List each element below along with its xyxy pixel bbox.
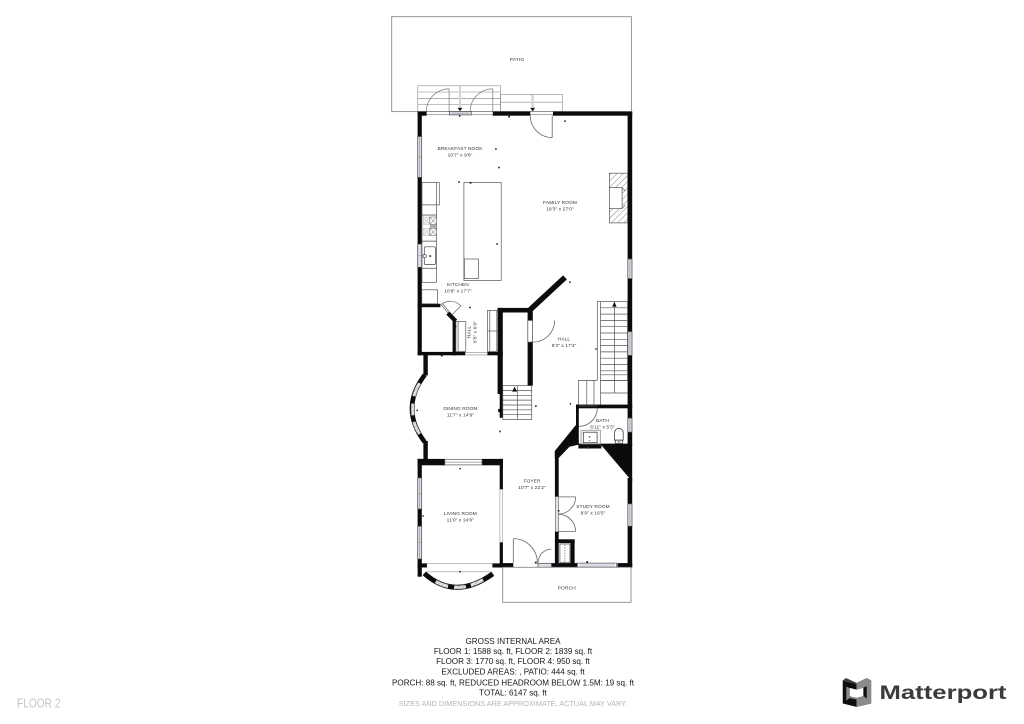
svg-text:FLOOR 3: 1770 sq. ft, FLOOR 4:: FLOOR 3: 1770 sq. ft, FLOOR 4: 950 sq. f… (436, 657, 591, 666)
svg-text:BREAKFAST NOOK: BREAKFAST NOOK (437, 146, 483, 152)
svg-text:FAMILY ROOM: FAMILY ROOM (543, 200, 577, 206)
svg-text:18'3" x 27'0": 18'3" x 27'0" (546, 207, 574, 213)
svg-text:FOYER: FOYER (523, 479, 540, 485)
svg-text:PATIO: PATIO (510, 57, 525, 63)
svg-text:Matterport: Matterport (880, 682, 1008, 704)
svg-text:FLOOR 1: 1588 sq. ft, FLOOR 2:: FLOOR 1: 1588 sq. ft, FLOOR 2: 1839 sq. … (434, 647, 593, 656)
svg-text:11'7" x 14'9": 11'7" x 14'9" (447, 413, 474, 419)
svg-text:TOTAL: 6147 sq. ft: TOTAL: 6147 sq. ft (479, 689, 547, 698)
svg-text:STUDY ROOM: STUDY ROOM (576, 504, 609, 510)
svg-text:HALL: HALL (558, 337, 571, 343)
svg-text:9'3" x 17'4": 9'3" x 17'4" (552, 343, 577, 349)
svg-text:GROSS INTERNAL AREA: GROSS INTERNAL AREA (465, 637, 561, 646)
svg-text:10'8" x 17'7": 10'8" x 17'7" (444, 289, 472, 295)
svg-text:SIZES AND DIMENSIONS ARE APPRO: SIZES AND DIMENSIONS ARE APPROXIMATE, AC… (399, 699, 627, 708)
svg-text:6'5" x 6'0": 6'5" x 6'0" (472, 321, 478, 343)
svg-text:6'11" x 5'3": 6'11" x 5'3" (590, 424, 615, 430)
svg-text:10'7" x 22'2": 10'7" x 22'2" (518, 485, 546, 491)
svg-text:11'0" x 14'8": 11'0" x 14'8" (447, 518, 474, 524)
svg-text:9'9" x 16'5": 9'9" x 16'5" (581, 511, 606, 517)
svg-text:10'7" x 9'6": 10'7" x 9'6" (448, 153, 473, 159)
svg-text:EXCLUDED AREAS: , PATIO: 444 s: EXCLUDED AREAS: , PATIO: 444 sq. ft (441, 668, 585, 677)
svg-text:FLOOR 2: FLOOR 2 (17, 695, 61, 710)
svg-text:DINING ROOM: DINING ROOM (443, 406, 477, 412)
svg-text:PORCH: PORCH (558, 586, 577, 592)
svg-text:PORCH: 88 sq. ft, REDUCED HEAD: PORCH: 88 sq. ft, REDUCED HEADROOM BELOW… (392, 678, 635, 687)
svg-text:KITCHEN: KITCHEN (447, 282, 469, 288)
svg-text:HALL: HALL (467, 326, 473, 339)
svg-text:LIVING ROOM: LIVING ROOM (444, 511, 477, 517)
svg-text:BATH: BATH (596, 418, 609, 424)
